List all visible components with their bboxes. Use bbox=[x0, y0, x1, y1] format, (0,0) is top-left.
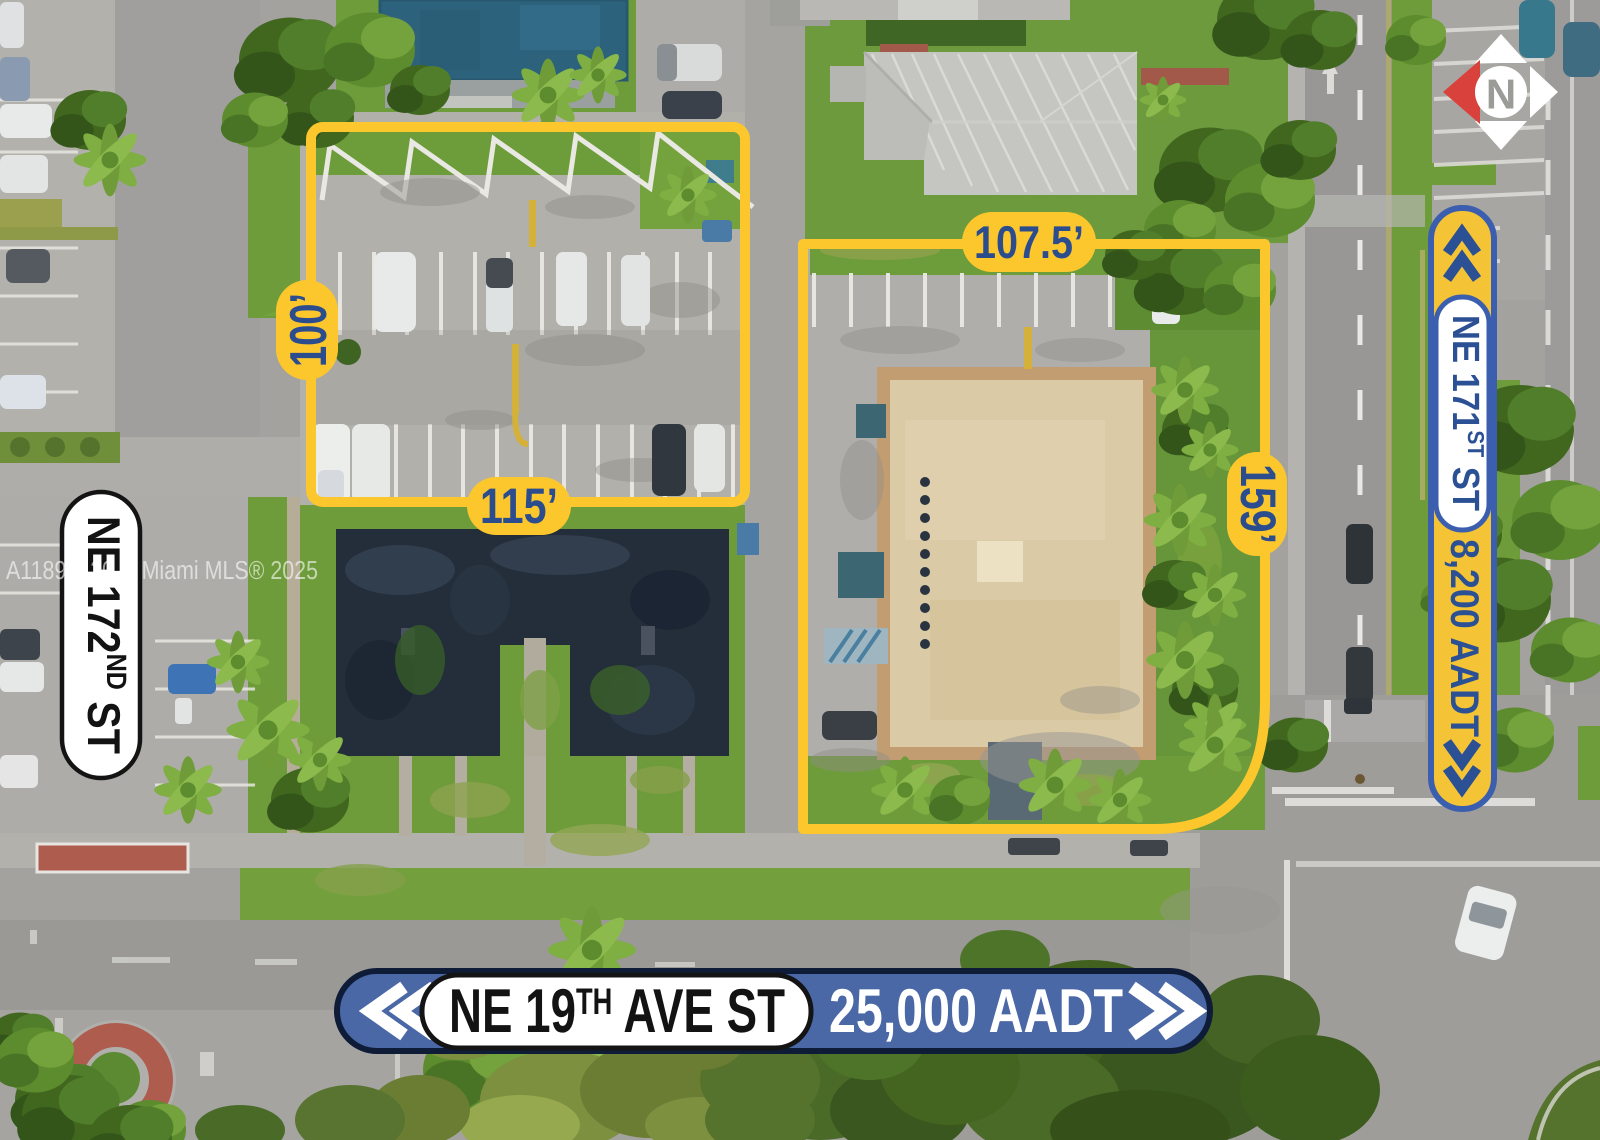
svg-text:159’: 159’ bbox=[1230, 464, 1286, 544]
svg-text:107.5’: 107.5’ bbox=[974, 216, 1084, 268]
svg-text:A11894420 © Miami MLS® 2025: A11894420 © Miami MLS® 2025 bbox=[6, 555, 318, 585]
svg-text:25,000 AADT: 25,000 AADT bbox=[829, 977, 1123, 1046]
svg-text:100’: 100’ bbox=[280, 293, 338, 367]
svg-text:NE 19TH AVE ST: NE 19TH AVE ST bbox=[449, 977, 785, 1046]
svg-text:NE 171ST ST: NE 171ST ST bbox=[1444, 315, 1489, 511]
svg-text:8,200 AADT: 8,200 AADT bbox=[1442, 539, 1486, 737]
svg-text:N: N bbox=[1486, 71, 1516, 118]
svg-text:115’: 115’ bbox=[480, 478, 558, 534]
svg-text:NE 172ND ST: NE 172ND ST bbox=[78, 516, 133, 754]
